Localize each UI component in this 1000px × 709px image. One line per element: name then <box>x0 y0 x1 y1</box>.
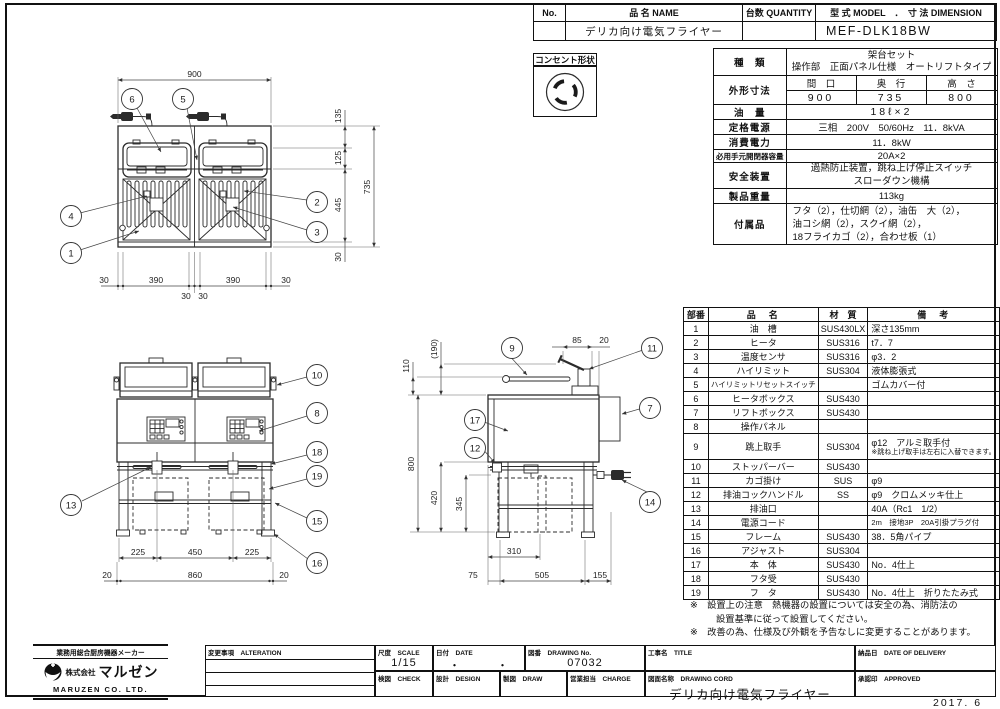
table-row: 4ハイリミットSUS304液体膨張式 <box>684 364 1000 378</box>
svg-text:17: 17 <box>470 416 481 427</box>
balloon-12: 12 <box>465 438 496 464</box>
spec-power-label: 定格電源 <box>714 120 787 135</box>
draw-label: 製図 DRAW <box>501 672 566 683</box>
scale-label: 尺度 SCALE <box>376 646 432 657</box>
design-label: 設計 DESIGN <box>434 672 499 683</box>
spec-dims-label: 外形寸法 <box>714 76 787 105</box>
dim-420: 420 <box>429 491 439 505</box>
charge-cell: 営業担当 CHARGE <box>567 671 645 697</box>
balloon-2: 2 <box>244 191 328 213</box>
dim-85: 85 <box>572 335 582 345</box>
dim-450: 450 <box>188 547 202 557</box>
company-name: マルゼン <box>99 662 159 682</box>
check-label: 検図 CHECK <box>376 672 432 683</box>
dim-30-c: 30 <box>198 291 208 301</box>
svg-text:7: 7 <box>647 404 652 415</box>
delivery-label: 納品日 DATE OF DELIVERY <box>856 646 995 657</box>
svg-text:14: 14 <box>645 498 656 509</box>
dim-445: 445 <box>333 198 343 212</box>
title-cell: 工事名 TITLE <box>645 645 855 671</box>
plan-view-linework <box>110 112 271 247</box>
spec-height-label: 高 さ <box>926 76 997 91</box>
front-view-dimensions: 225 450 225 20 860 20 <box>102 470 289 585</box>
approved-cell: 承認印 APPROVED <box>855 671 996 697</box>
installation-notes: ※ 設置上の注意 熱機器の設置については安全の為、消防法の 設置基準に従って設置… <box>690 599 996 640</box>
spec-width-value: 900 <box>786 91 856 105</box>
balloon-18: 18 <box>271 442 328 465</box>
svg-text:6: 6 <box>129 95 134 106</box>
spec-weight-value: 113kg <box>786 189 997 204</box>
note-1-line-2: 設置基準に従って設置してください。 <box>690 613 996 627</box>
spec-kind-label: 種 類 <box>714 49 787 76</box>
table-row: 11カゴ掛けSUSφ9 <box>684 474 1000 488</box>
header-qty-value <box>743 22 816 41</box>
spec-weight-label: 製品重量 <box>714 189 787 204</box>
spec-power-value: 三相 200V 50/60Hz 11．8kVA <box>786 120 997 135</box>
dim-390-b: 390 <box>226 275 240 285</box>
side-view-dimensions: (190) 110 800 420 345 85 20 <box>401 335 611 585</box>
spec-kind-line1: 架台セット <box>789 50 995 63</box>
dim-125: 125 <box>333 151 343 165</box>
dim-20-a: 20 <box>102 570 112 580</box>
drawing-sheet: No. 品 名 NAME 台数 QUANTITY 型 式 MODEL ． 寸 法… <box>0 0 1000 709</box>
balloon-10: 10 <box>277 365 328 386</box>
parts-row9-note2: ※跳ね上げ取手は左右に入替できます。 <box>871 449 997 457</box>
plan-view-drawing: 900 135 125 445 30 735 <box>35 60 390 310</box>
spec-accessories-line2: 油コシ網（2），スクイ網（2）， <box>793 218 995 231</box>
dim-155: 155 <box>593 570 607 580</box>
drawing-name-label: 図面名称 DRAWING CORD <box>646 672 854 683</box>
balloon-17: 17 <box>465 410 509 432</box>
side-view-linework <box>488 355 631 537</box>
drawing-no-label: 図番 DRAWING No. <box>526 646 644 657</box>
table-row: 14電源コード2m 接地3P 20A引掛プラグ付 <box>684 516 1000 530</box>
dim-110: 110 <box>401 359 411 373</box>
svg-text:3: 3 <box>314 228 319 239</box>
spec-safety-label: 安全装置 <box>714 163 787 189</box>
alteration-box: 変更事項 ALTERATION <box>205 645 375 697</box>
drawing-name-cell: 図面名称 DRAWING CORD デリカ向け電気フライヤー <box>645 671 855 697</box>
alteration-label: 変更事項 ALTERATION <box>206 646 374 657</box>
dim-310: 310 <box>507 546 521 556</box>
scale-cell: 尺度 SCALE 1/15 <box>375 645 433 671</box>
spec-width-label: 間 口 <box>786 76 856 91</box>
svg-text:4: 4 <box>68 212 73 223</box>
table-row: 8操作パネル <box>684 420 1000 434</box>
outlet-shape-label: コンセント形状 <box>533 53 597 66</box>
table-row: 3温度センサSUS316φ3．2 <box>684 350 1000 364</box>
svg-text:8: 8 <box>314 409 319 420</box>
svg-text:10: 10 <box>312 371 323 382</box>
spec-depth-label: 奥 行 <box>856 76 926 91</box>
spec-consumption-value: 11．8kW <box>786 135 997 150</box>
table-row: 6ヒータボックスSUS430 <box>684 392 1000 406</box>
scale-value: 1/15 <box>376 657 432 669</box>
dim-190: (190) <box>429 339 439 359</box>
balloon-13: 13 <box>61 467 152 516</box>
charge-label: 営業担当 CHARGE <box>568 672 644 683</box>
dim-20: 20 <box>599 335 609 345</box>
table-row: 5ハイリミットリセットスイッチゴムカバー付 <box>684 378 1000 392</box>
drawing-name-value: デリカ向け電気フライヤー <box>646 683 854 703</box>
balloon-14: 14 <box>622 480 661 513</box>
table-row: 13排油口40A（Rc1 1/2） <box>684 502 1000 516</box>
date-label: 日付 DATE <box>434 646 524 657</box>
balloon-8: 8 <box>259 403 328 432</box>
side-view-drawing: (190) 110 800 420 345 85 20 <box>400 320 690 592</box>
approved-label: 承認印 APPROVED <box>856 672 995 683</box>
spec-accessories-line3: 18フライカゴ（2），合わせ板（1） <box>793 231 995 244</box>
design-cell: 設計 DESIGN <box>433 671 500 697</box>
dim-135: 135 <box>333 109 343 123</box>
svg-text:9: 9 <box>509 344 514 355</box>
date-stamp: 2017. 6 <box>933 697 982 709</box>
dim-225-b: 225 <box>245 547 259 557</box>
dim-30-right: 30 <box>333 252 343 262</box>
balloon-16: 16 <box>274 534 328 574</box>
spec-breaker-label: 必用手元開閉器容量 <box>714 150 787 163</box>
header-name-value: デリカ向け電気フライヤー <box>566 22 743 41</box>
svg-text:11: 11 <box>647 344 657 355</box>
svg-text:5: 5 <box>180 95 185 106</box>
spec-safety-line1: 過熱防止装置，跳ね上げ停止スイッチ <box>789 163 995 176</box>
parts-name-header: 品 名 <box>708 308 818 322</box>
spec-accessories-line1: フタ（2），仕切網（2），油缶 大（2）， <box>793 205 995 218</box>
spec-height-value: 800 <box>926 91 997 105</box>
svg-text:19: 19 <box>312 472 323 483</box>
balloon-9: 9 <box>502 338 528 376</box>
parts-table: 部番 品 名 材 質 備 考 1油 槽SUS430LX深さ135mm 2ヒータS… <box>683 307 1000 600</box>
table-row: 2ヒータSUS316t7．7 <box>684 336 1000 350</box>
dim-30-b: 30 <box>181 291 191 301</box>
svg-text:12: 12 <box>470 444 481 455</box>
dim-800: 800 <box>406 457 416 471</box>
note-2: ※ 改善の為、仕様及び外観を予告なしに変更することがあります。 <box>690 626 996 640</box>
balloon-4: 4 <box>61 196 148 227</box>
dim-30-d: 30 <box>281 275 291 285</box>
header-no-label: No. <box>534 4 566 22</box>
svg-text:13: 13 <box>66 501 77 512</box>
dim-505: 505 <box>535 570 549 580</box>
drawing-no-value: 07032 <box>526 657 644 669</box>
outlet-shape-box <box>533 66 597 117</box>
parts-note-header: 備 考 <box>868 308 1000 322</box>
company-name-en: MARUZEN CO. LTD. <box>33 682 168 694</box>
table-row: 17本 体SUS430No．4仕上 <box>684 558 1000 572</box>
table-row: 10ストッパーバーSUS430 <box>684 460 1000 474</box>
dim-20-b: 20 <box>279 570 289 580</box>
balloon-5: 5 <box>173 89 198 161</box>
company-prefix: 株式会社 <box>66 667 96 678</box>
table-row: 15フレームSUS43038．5角パイプ <box>684 530 1000 544</box>
spec-safety-line2: スローダウン機構 <box>789 176 995 189</box>
draw-cell: 製図 DRAW <box>500 671 567 697</box>
dim-75: 75 <box>468 570 478 580</box>
front-view-drawing: 225 450 225 20 860 20 13 10 8 18 <box>35 340 345 595</box>
svg-text:1: 1 <box>68 249 73 260</box>
table-row: 9 跳上取手 SUS304 φ12 アルミ取手付※跳ね上げ取手は左右に入替できま… <box>684 434 1000 460</box>
spec-accessories-label: 付属品 <box>714 204 787 245</box>
dim-30-a: 30 <box>99 275 109 285</box>
maruzen-logo-icon <box>43 662 63 682</box>
drawing-no-cell: 図番 DRAWING No. 07032 <box>525 645 645 671</box>
date-cell: 日付 DATE ・ ・ <box>433 645 525 671</box>
svg-text:15: 15 <box>312 517 323 528</box>
check-cell: 検図 CHECK <box>375 671 433 697</box>
spec-oil-label: 油 量 <box>714 105 787 120</box>
header-name-label: 品 名 NAME <box>566 4 743 22</box>
header-model-value: MEF-DLK18BW <box>816 22 997 41</box>
spec-breaker-value: 20A×2 <box>786 150 997 163</box>
table-row: 16アジャストSUS304 <box>684 544 1000 558</box>
parts-material-header: 材 質 <box>818 308 868 322</box>
delivery-cell: 納品日 DATE OF DELIVERY <box>855 645 996 671</box>
spec-table: 種 類 架台セット 操作部 正面パネル仕様 オートリフトタイプ 外形寸法 間 口… <box>713 48 998 245</box>
front-view-linework <box>114 358 276 536</box>
balloon-19: 19 <box>269 466 328 490</box>
balloon-7: 7 <box>622 398 661 419</box>
twist-lock-outlet-icon <box>534 67 596 116</box>
company-logo-block: 業務用総合厨房機器メーカー 株式会社 マルゼン MARUZEN CO. LTD. <box>33 644 168 700</box>
balloon-15: 15 <box>275 503 328 532</box>
svg-text:18: 18 <box>312 448 323 459</box>
table-row: 7リフトボックスSUS430 <box>684 406 1000 420</box>
table-row: 1油 槽SUS430LX深さ135mm <box>684 322 1000 336</box>
table-row: 12排油コックハンドルSSφ9 クロムメッキ仕上 <box>684 488 1000 502</box>
header-model-label: 型 式 MODEL ． 寸 法 DIMENSION <box>816 4 997 22</box>
spec-oil-value: 18ℓ×2 <box>786 105 997 120</box>
spec-depth-value: 735 <box>856 91 926 105</box>
header-table: No. 品 名 NAME 台数 QUANTITY 型 式 MODEL ． 寸 法… <box>533 3 997 41</box>
svg-text:2: 2 <box>314 198 319 209</box>
dim-345: 345 <box>454 497 464 511</box>
note-1-line-1: ※ 設置上の注意 熱機器の設置については安全の為、消防法の <box>690 599 996 613</box>
title-label: 工事名 TITLE <box>646 646 854 657</box>
header-qty-label: 台数 QUANTITY <box>743 4 816 22</box>
table-row: 19フ タSUS430No．4仕上 折りたたみ式 <box>684 586 1000 600</box>
header-no-value <box>534 22 566 41</box>
dim-390-a: 390 <box>149 275 163 285</box>
table-row: 18フタ受SUS430 <box>684 572 1000 586</box>
dim-860: 860 <box>188 570 202 580</box>
dim-225-a: 225 <box>131 547 145 557</box>
company-tagline: 業務用総合厨房機器メーカー <box>33 646 168 659</box>
dim-735: 735 <box>362 180 372 194</box>
dim-900: 900 <box>187 69 201 79</box>
svg-text:16: 16 <box>312 559 323 570</box>
spec-kind-line2: 操作部 正面パネル仕様 オートリフトタイプ <box>789 62 995 75</box>
spec-consumption-label: 消費電力 <box>714 135 787 150</box>
